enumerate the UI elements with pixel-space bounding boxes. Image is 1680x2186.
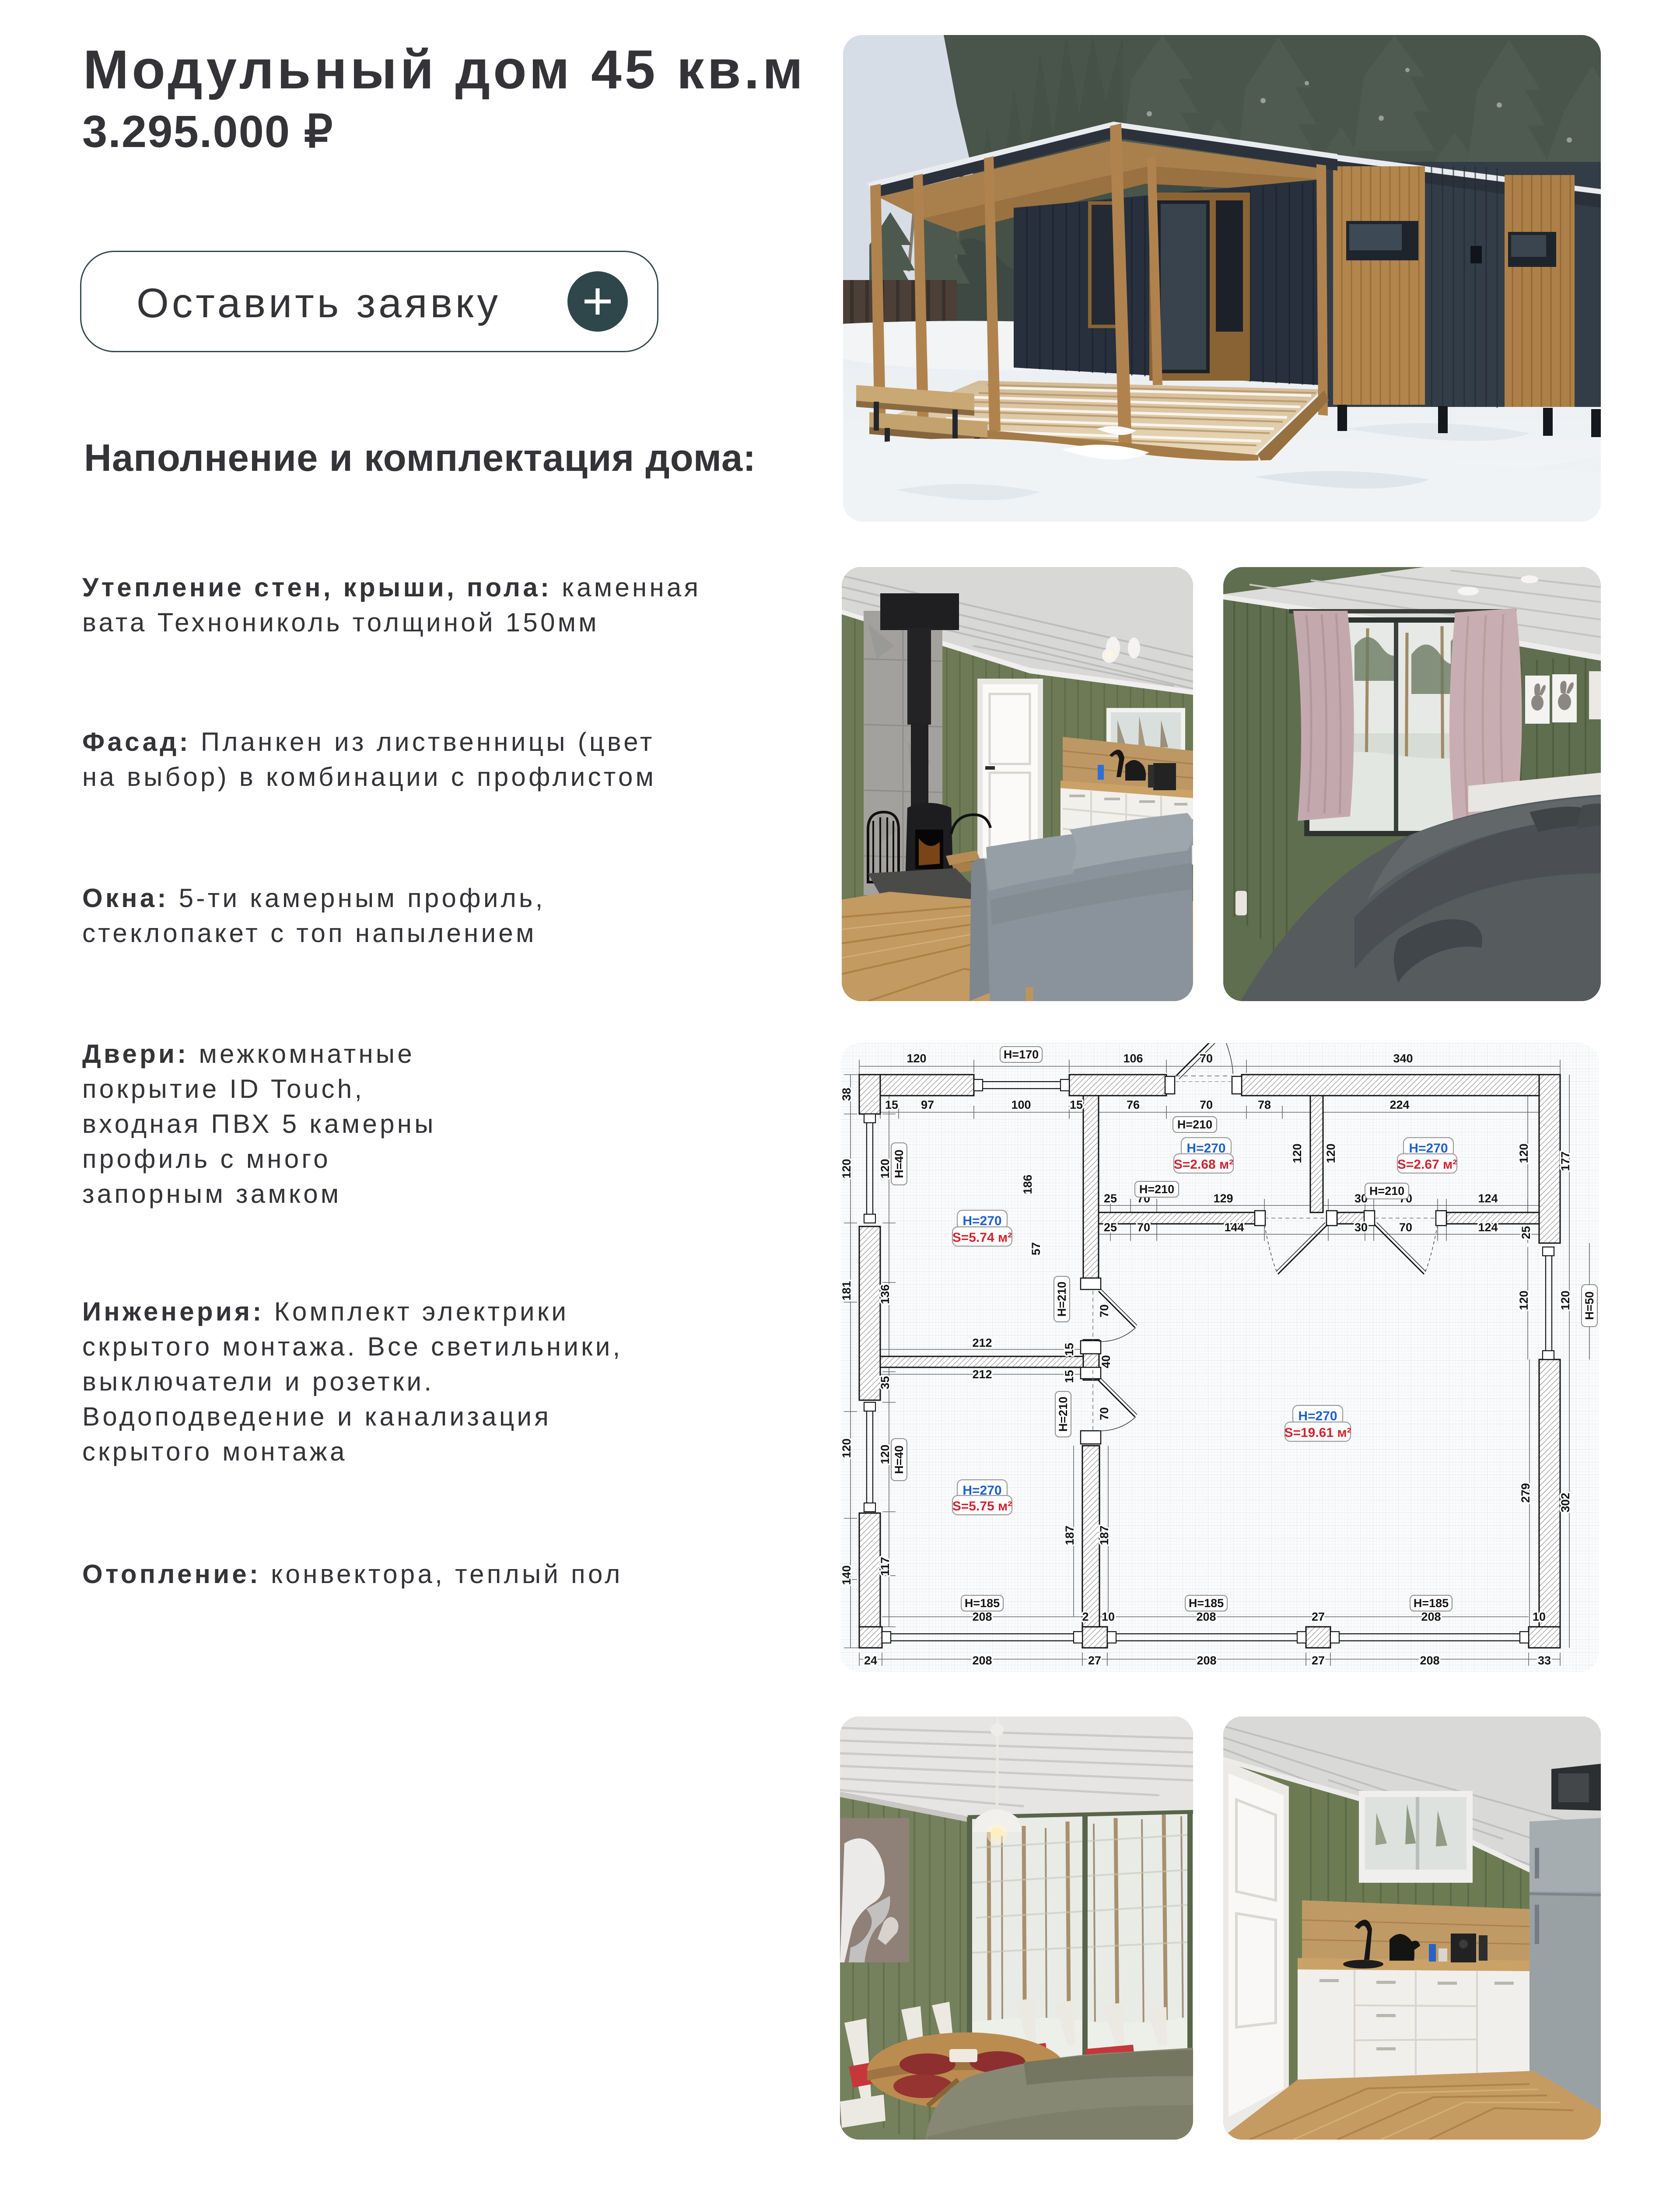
svg-text:70: 70: [1098, 1304, 1111, 1317]
svg-text:208: 208: [972, 1654, 992, 1667]
svg-text:208: 208: [972, 1610, 992, 1623]
svg-text:120: 120: [840, 1159, 853, 1178]
svg-text:S=5.75 м²: S=5.75 м²: [952, 1499, 1012, 1513]
svg-text:25: 25: [1519, 1226, 1533, 1239]
svg-text:120: 120: [878, 1444, 892, 1464]
svg-text:100: 100: [1011, 1098, 1031, 1111]
svg-text:181: 181: [840, 1281, 853, 1300]
svg-text:H=185: H=185: [1414, 1597, 1449, 1610]
svg-text:177: 177: [1559, 1151, 1572, 1171]
svg-text:212: 212: [972, 1368, 992, 1381]
svg-text:97: 97: [921, 1098, 934, 1111]
svg-text:15: 15: [885, 1098, 898, 1111]
svg-text:H=270: H=270: [962, 1214, 1001, 1228]
svg-text:H=40: H=40: [892, 1445, 906, 1474]
svg-text:40: 40: [1099, 1355, 1113, 1368]
svg-text:H=210: H=210: [1055, 1282, 1068, 1317]
svg-text:S=2.68 м²: S=2.68 м²: [1174, 1157, 1233, 1172]
svg-text:120: 120: [840, 1438, 853, 1458]
svg-text:H=270: H=270: [1298, 1409, 1337, 1423]
svg-text:208: 208: [1197, 1654, 1216, 1667]
svg-text:H=170: H=170: [1004, 1048, 1039, 1061]
svg-text:38: 38: [840, 1088, 853, 1101]
svg-text:124: 124: [1478, 1221, 1498, 1234]
svg-text:10: 10: [1102, 1610, 1115, 1623]
svg-text:208: 208: [1420, 1654, 1439, 1667]
svg-text:57: 57: [1029, 1242, 1043, 1255]
svg-text:S=19.61 м²: S=19.61 м²: [1284, 1426, 1351, 1440]
svg-text:H=210: H=210: [1369, 1184, 1404, 1198]
svg-text:15: 15: [1063, 1370, 1076, 1383]
svg-text:187: 187: [1098, 1525, 1111, 1545]
svg-text:120: 120: [1517, 1290, 1530, 1310]
svg-text:15: 15: [1063, 1343, 1076, 1356]
svg-text:208: 208: [1421, 1610, 1441, 1623]
svg-text:27: 27: [1312, 1654, 1325, 1667]
svg-text:S=2.67 м²: S=2.67 м²: [1397, 1157, 1457, 1172]
svg-text:70: 70: [1200, 1052, 1213, 1065]
svg-text:144: 144: [1224, 1221, 1244, 1234]
svg-text:340: 340: [1393, 1052, 1413, 1065]
svg-text:70: 70: [1098, 1407, 1111, 1420]
svg-text:33: 33: [1538, 1654, 1551, 1667]
svg-text:136: 136: [878, 1284, 892, 1304]
svg-text:H=210: H=210: [1177, 1118, 1212, 1131]
svg-text:186: 186: [1021, 1174, 1034, 1194]
svg-text:27: 27: [1312, 1610, 1325, 1623]
svg-text:120: 120: [1517, 1143, 1530, 1163]
svg-text:H=210: H=210: [1139, 1183, 1174, 1196]
svg-text:35: 35: [878, 1376, 892, 1389]
svg-text:120: 120: [906, 1052, 926, 1065]
svg-text:15: 15: [1070, 1098, 1083, 1111]
svg-text:10: 10: [1533, 1610, 1546, 1623]
svg-text:H=210: H=210: [1057, 1397, 1070, 1432]
svg-text:124: 124: [1478, 1192, 1498, 1205]
svg-text:212: 212: [972, 1336, 992, 1349]
svg-text:279: 279: [1519, 1483, 1532, 1503]
svg-text:70: 70: [1200, 1098, 1213, 1111]
svg-text:129: 129: [1213, 1192, 1233, 1205]
svg-text:30: 30: [1354, 1221, 1368, 1234]
svg-text:S=5.74 м²: S=5.74 м²: [952, 1230, 1012, 1245]
svg-text:187: 187: [1063, 1525, 1076, 1545]
svg-text:140: 140: [840, 1565, 853, 1585]
svg-text:76: 76: [1127, 1098, 1140, 1111]
svg-text:78: 78: [1258, 1098, 1271, 1111]
svg-text:2: 2: [1082, 1610, 1088, 1623]
svg-text:224: 224: [1389, 1098, 1409, 1111]
svg-text:120: 120: [1291, 1143, 1304, 1163]
svg-text:H=185: H=185: [1189, 1597, 1224, 1610]
svg-text:117: 117: [878, 1557, 892, 1576]
svg-text:208: 208: [1196, 1610, 1216, 1623]
svg-text:24: 24: [864, 1654, 877, 1667]
svg-text:70: 70: [1137, 1221, 1150, 1234]
svg-text:25: 25: [1104, 1221, 1117, 1234]
svg-text:27: 27: [1088, 1654, 1101, 1667]
svg-text:120: 120: [1324, 1143, 1337, 1163]
svg-text:120: 120: [1559, 1290, 1572, 1310]
svg-text:25: 25: [1104, 1192, 1117, 1205]
svg-text:70: 70: [1399, 1221, 1412, 1234]
svg-text:120: 120: [878, 1159, 892, 1178]
svg-text:H=40: H=40: [892, 1149, 906, 1178]
svg-text:106: 106: [1123, 1052, 1143, 1065]
svg-text:H=50: H=50: [1583, 1291, 1596, 1320]
svg-text:302: 302: [1559, 1492, 1572, 1512]
svg-text:H=185: H=185: [965, 1597, 1000, 1610]
